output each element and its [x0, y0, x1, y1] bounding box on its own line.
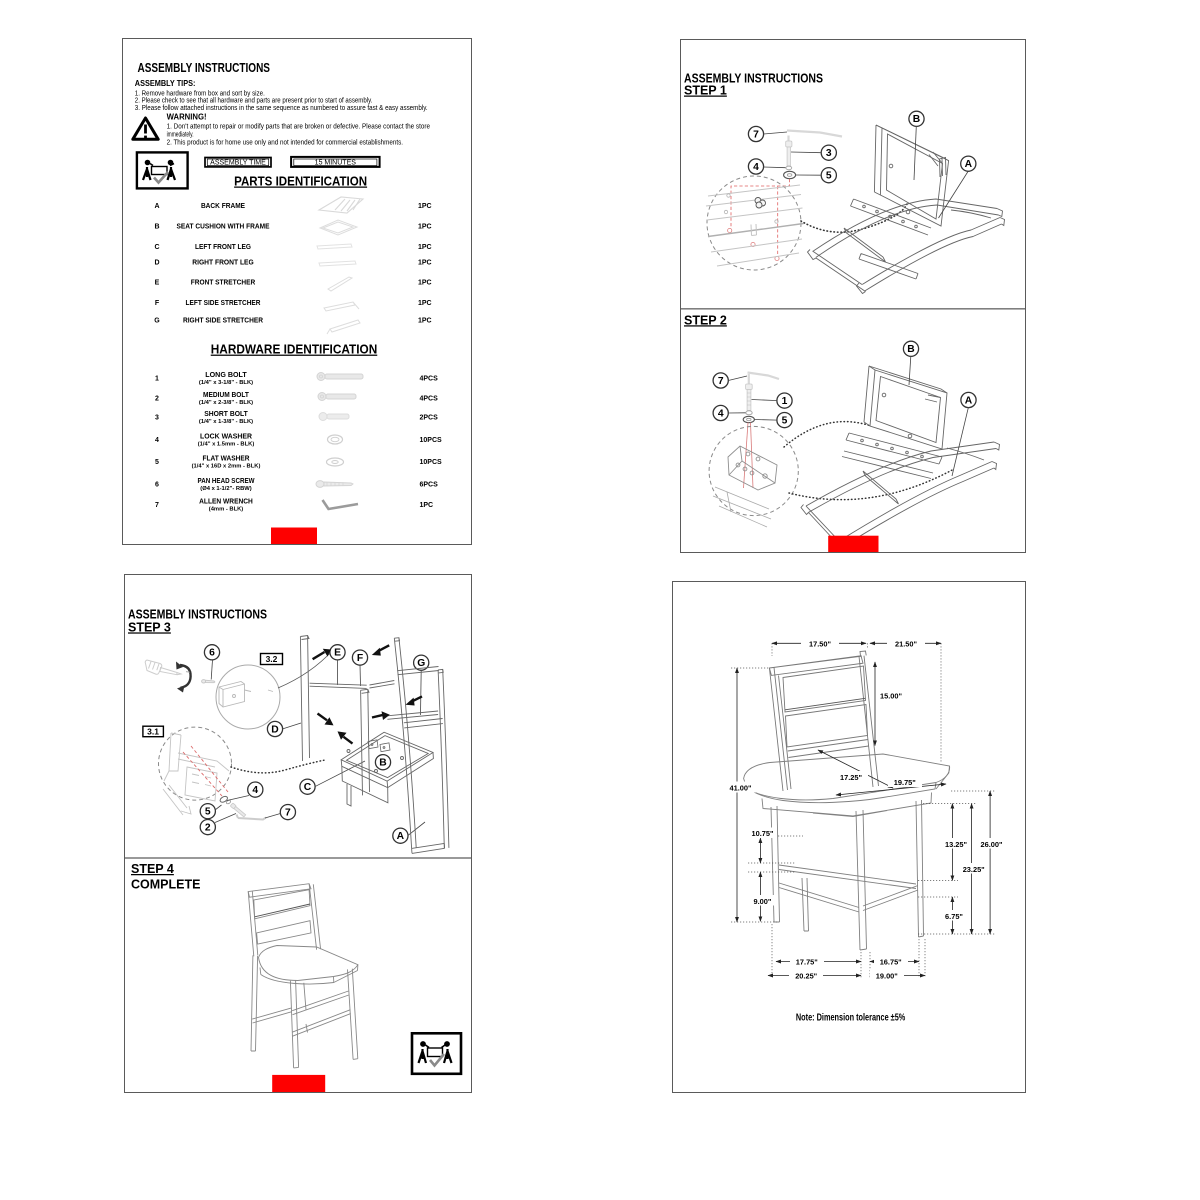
svg-text:15 MINUTES: 15 MINUTES [315, 159, 357, 166]
svg-text:RIGHT SIDE STRETCHER: RIGHT SIDE STRETCHER [183, 318, 263, 325]
svg-text:(1/4" x 1-3/8" - BLK): (1/4" x 1-3/8" - BLK) [199, 419, 253, 425]
svg-text:7: 7 [285, 808, 291, 819]
svg-text:17.25": 17.25" [840, 773, 862, 782]
svg-text:F: F [155, 300, 160, 307]
svg-text:B: B [154, 224, 159, 231]
svg-text:A: A [397, 831, 405, 842]
svg-text:STEP 1: STEP 1 [684, 84, 727, 98]
svg-text:2. Please check to see that al: 2. Please check to see that all hardware… [135, 98, 373, 105]
svg-text:RIGHT FRONT LEG: RIGHT FRONT LEG [192, 260, 254, 267]
svg-text:B: B [907, 344, 914, 355]
svg-text:ASSEMBLY TIME: ASSEMBLY TIME [210, 159, 266, 166]
svg-text:3: 3 [155, 414, 159, 421]
svg-text:LONG BOLT: LONG BOLT [205, 372, 247, 379]
svg-text:D: D [154, 260, 159, 267]
svg-text:6.75": 6.75" [945, 912, 963, 921]
svg-text:COMPLETE: COMPLETE [131, 878, 200, 892]
svg-text:MEDIUM BOLT: MEDIUM BOLT [203, 392, 250, 399]
svg-text:STEP 2: STEP 2 [684, 313, 727, 327]
svg-text:5: 5 [205, 807, 211, 818]
svg-text:1PC: 1PC [418, 224, 432, 231]
svg-text:ASSEMBLY TIPS:: ASSEMBLY TIPS: [135, 78, 196, 88]
svg-text:6: 6 [155, 482, 159, 489]
svg-text:STEP 4: STEP 4 [131, 862, 174, 876]
svg-text:ALLEN WRENCH: ALLEN WRENCH [199, 499, 253, 506]
svg-text:STEP 3: STEP 3 [128, 620, 171, 634]
svg-text:7: 7 [718, 376, 724, 387]
svg-text:FRONT STRETCHER: FRONT STRETCHER [191, 280, 256, 287]
svg-text:4PCS: 4PCS [420, 396, 439, 403]
svg-text:1PC: 1PC [418, 280, 432, 287]
svg-text:D: D [271, 724, 278, 735]
svg-text:3.2: 3.2 [266, 654, 278, 664]
svg-text:26.00": 26.00" [981, 840, 1003, 849]
svg-text:A: A [154, 203, 159, 210]
svg-text:7: 7 [753, 129, 759, 140]
svg-text:1PC: 1PC [418, 260, 432, 267]
svg-text:(1/4" x 1.5mm - BLK): (1/4" x 1.5mm - BLK) [198, 441, 255, 447]
svg-text:FLAT WASHER: FLAT WASHER [202, 456, 249, 463]
svg-text:A: A [965, 159, 973, 170]
svg-text:BACK FRAME: BACK FRAME [201, 203, 245, 210]
svg-text:7: 7 [155, 502, 159, 509]
svg-text:23.25": 23.25" [963, 865, 985, 874]
svg-text:B: B [913, 114, 920, 125]
svg-text:PARTS IDENTIFICATION: PARTS IDENTIFICATION [234, 175, 367, 189]
svg-text:4PCS: 4PCS [420, 376, 439, 383]
svg-text:G: G [154, 318, 160, 325]
svg-text:17.75": 17.75" [796, 958, 818, 967]
svg-text:3.1: 3.1 [147, 726, 159, 736]
svg-text:5: 5 [826, 171, 832, 182]
svg-text:10PCS: 10PCS [420, 459, 443, 466]
svg-text:LEFT SIDE STRETCHER: LEFT SIDE STRETCHER [186, 300, 261, 307]
svg-text:9.00": 9.00" [753, 897, 771, 906]
svg-text:1. Remove hardware from box an: 1. Remove hardware from box and sort by … [135, 91, 265, 98]
svg-text:1: 1 [782, 396, 788, 407]
svg-text:5: 5 [155, 459, 159, 466]
svg-text:2PCS: 2PCS [420, 414, 439, 421]
svg-text:(1/4" x 3-1/8" - BLK): (1/4" x 3-1/8" - BLK) [199, 380, 253, 386]
svg-text:(1/4" x 2-3/8" - BLK): (1/4" x 2-3/8" - BLK) [199, 400, 253, 406]
svg-text:4: 4 [155, 437, 159, 444]
svg-text:13.25": 13.25" [945, 840, 967, 849]
svg-text:E: E [334, 648, 341, 659]
svg-text:15.00": 15.00" [880, 692, 902, 701]
svg-text:A: A [965, 395, 973, 406]
svg-text:(Ø4 x 1-1/2"- RBW): (Ø4 x 1-1/2"- RBW) [200, 486, 251, 492]
svg-text:ASSEMBLY INSTRUCTIONS: ASSEMBLY INSTRUCTIONS [138, 60, 271, 75]
svg-text:E: E [155, 280, 160, 287]
svg-text:SHORT BOLT: SHORT BOLT [204, 411, 248, 418]
svg-text:WARNING!: WARNING! [167, 112, 207, 122]
svg-text:10.75": 10.75" [752, 829, 774, 838]
svg-text:PAN HEAD SCREW: PAN HEAD SCREW [198, 478, 255, 485]
svg-text:LOCK WASHER: LOCK WASHER [200, 433, 252, 440]
svg-text:1. Don't attempt to repair or: 1. Don't attempt to repair or modify par… [167, 124, 430, 131]
svg-text:ASSEMBLY INSTRUCTIONS: ASSEMBLY INSTRUCTIONS [128, 606, 267, 621]
svg-text:B: B [379, 758, 386, 769]
svg-text:C: C [304, 782, 312, 793]
svg-text:20.25": 20.25" [795, 972, 817, 981]
svg-text:(1/4" x 16D x 2mm - BLK): (1/4" x 16D x 2mm - BLK) [192, 464, 261, 470]
svg-text:6: 6 [209, 648, 215, 659]
svg-text:3: 3 [826, 148, 832, 159]
svg-text:LEFT FRONT LEG: LEFT FRONT LEG [195, 244, 252, 251]
svg-text:2. This product is for home us: 2. This product is for home use only and… [167, 140, 403, 147]
svg-text:17.50": 17.50" [809, 639, 831, 648]
svg-text:2: 2 [155, 396, 159, 403]
svg-text:16.75": 16.75" [880, 958, 902, 967]
svg-text:1PC: 1PC [420, 502, 434, 509]
svg-text:1PC: 1PC [418, 318, 432, 325]
svg-text:1PC: 1PC [418, 300, 432, 307]
svg-text:41.00": 41.00" [730, 784, 752, 793]
svg-text:Note: Dimension tolerance ±5%: Note: Dimension tolerance ±5% [796, 1013, 905, 1024]
svg-text:4: 4 [252, 785, 258, 796]
svg-text:1: 1 [155, 376, 159, 383]
svg-text:5: 5 [782, 416, 788, 427]
svg-text:21.50": 21.50" [895, 639, 917, 648]
svg-text:G: G [417, 658, 425, 669]
svg-text:19.00": 19.00" [876, 972, 898, 981]
svg-text:immediately.: immediately. [167, 132, 194, 139]
svg-text:1PC: 1PC [418, 244, 432, 251]
svg-text:6PCS: 6PCS [420, 482, 439, 489]
svg-text:4: 4 [753, 162, 759, 173]
svg-text:HARDWARE IDENTIFICATION: HARDWARE IDENTIFICATION [211, 343, 378, 357]
svg-text:19.75": 19.75" [894, 778, 916, 787]
svg-text:4: 4 [718, 408, 724, 419]
svg-text:1PC: 1PC [418, 203, 432, 210]
svg-text:F: F [357, 653, 363, 664]
svg-text:C: C [154, 244, 159, 251]
svg-text:2: 2 [205, 823, 211, 834]
svg-text:10PCS: 10PCS [420, 437, 443, 444]
svg-text:(4mm - BLK): (4mm - BLK) [209, 507, 244, 513]
svg-text:SEAT CUSHION WITH FRAME: SEAT CUSHION WITH FRAME [177, 224, 270, 231]
